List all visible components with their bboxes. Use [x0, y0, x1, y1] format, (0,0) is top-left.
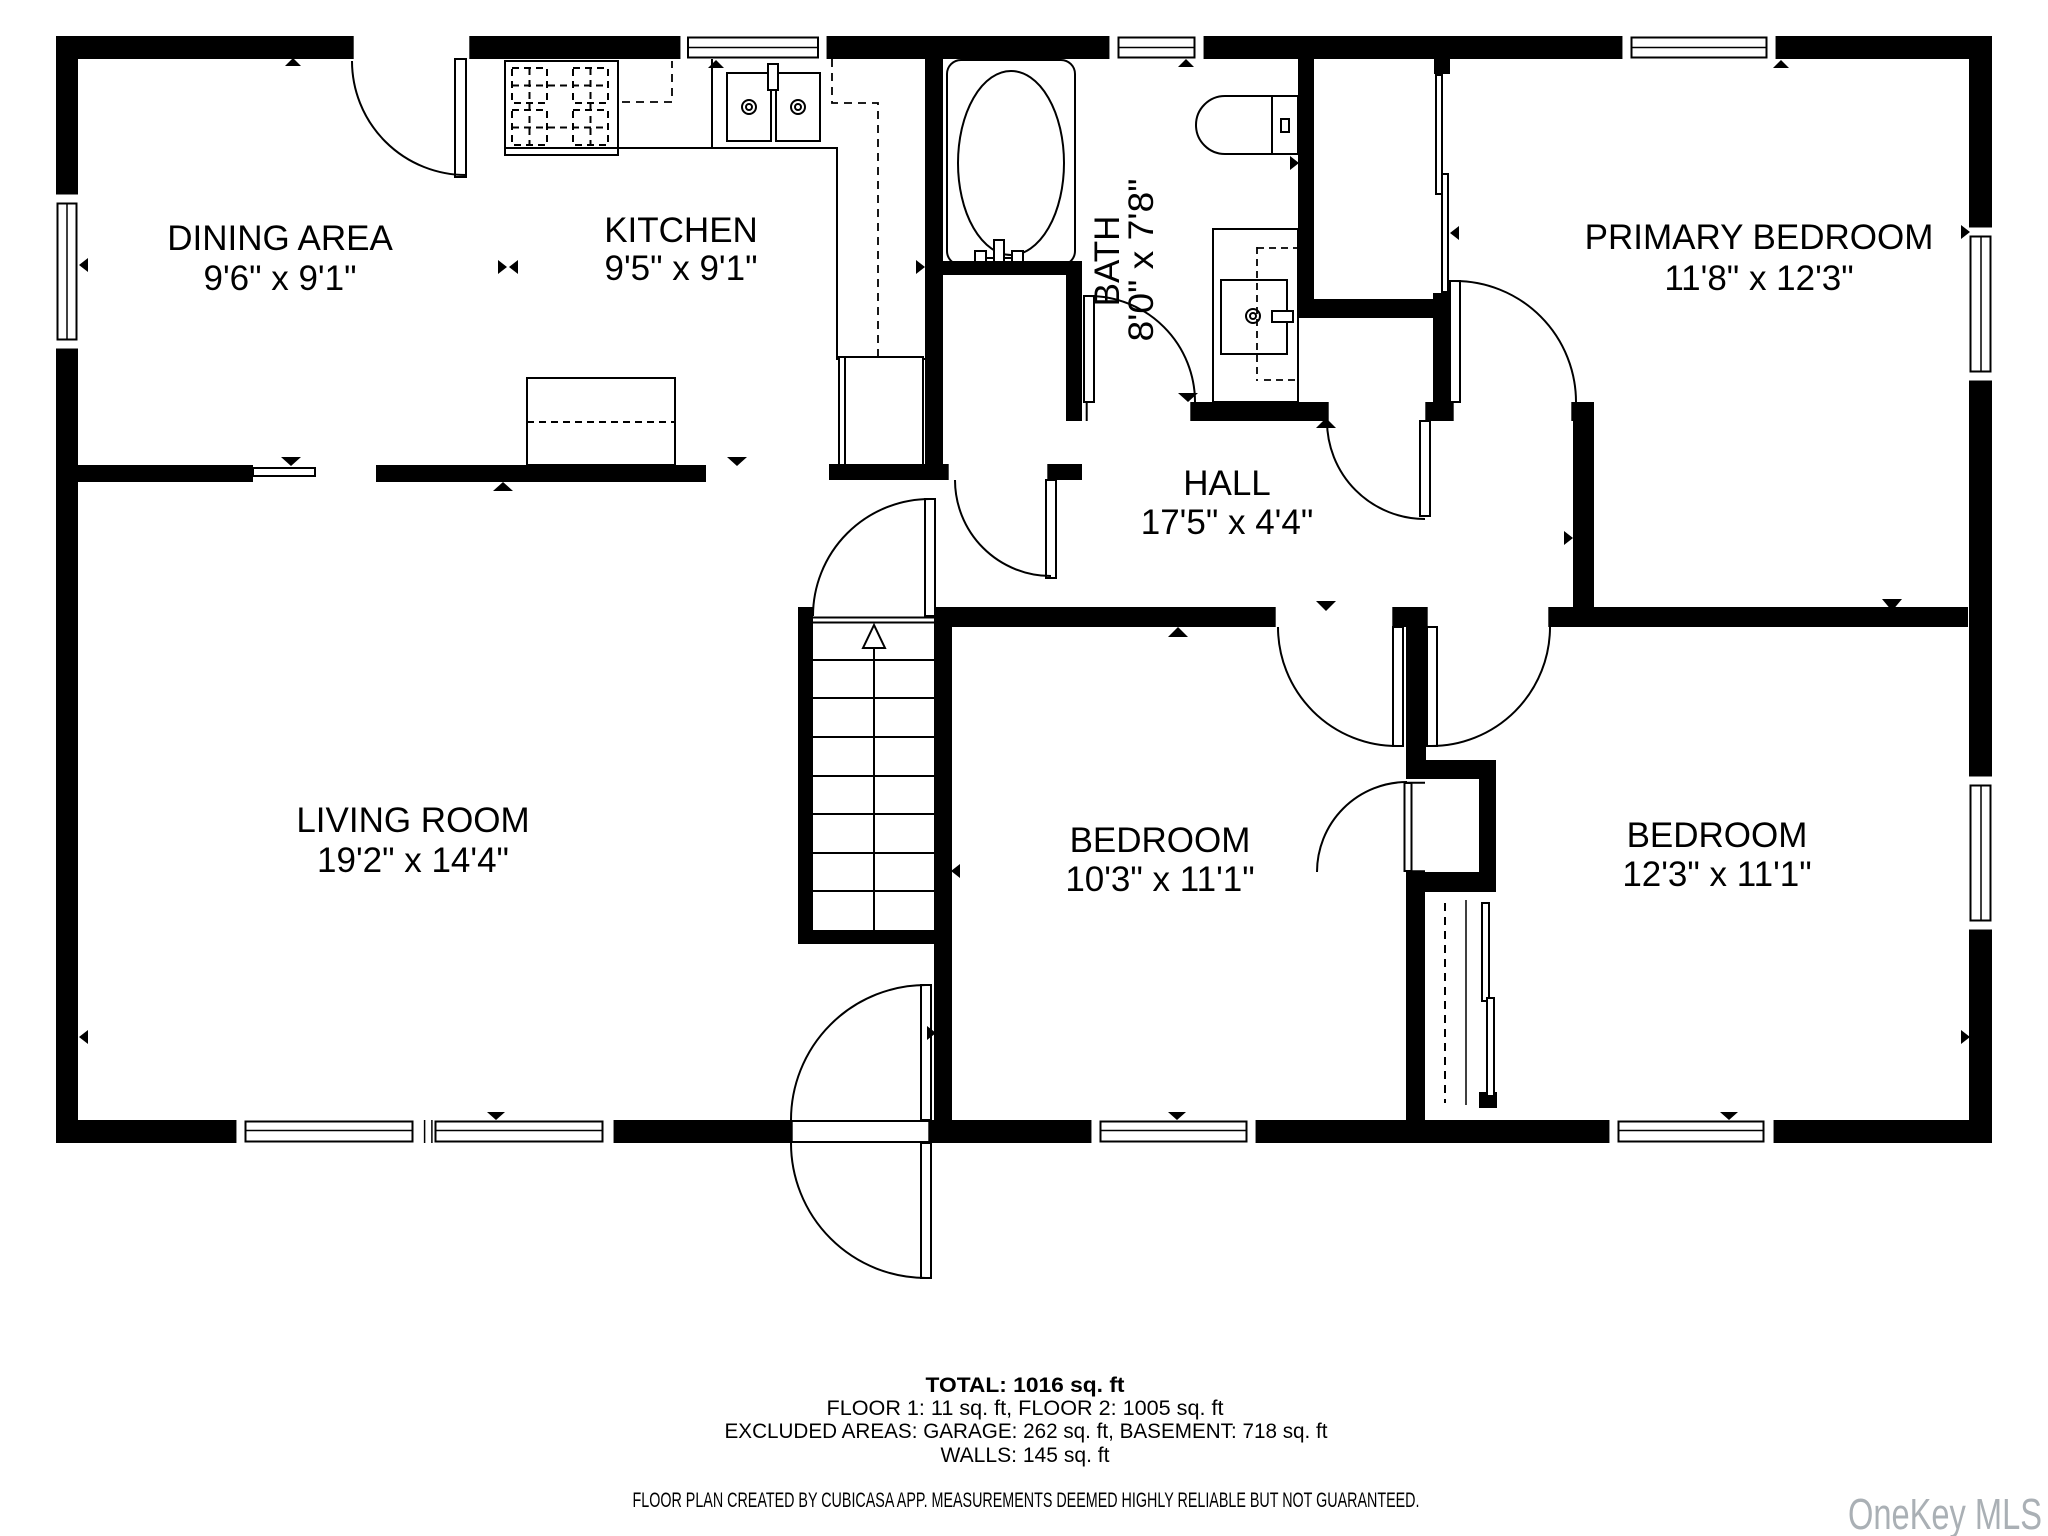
svg-text:LIVING ROOM: LIVING ROOM [296, 801, 529, 840]
svg-text:KITCHEN: KITCHEN [604, 211, 758, 250]
svg-text:BEDROOM: BEDROOM [1070, 821, 1251, 860]
svg-text:DINING AREA: DINING AREA [167, 219, 393, 258]
svg-text:FLOOR PLAN CREATED BY CUBICASA: FLOOR PLAN CREATED BY CUBICASA APP. MEAS… [633, 1489, 1420, 1512]
svg-text:19'2" x 14'4": 19'2" x 14'4" [317, 841, 509, 880]
svg-text:OneKey MLS: OneKey MLS [1848, 1490, 2042, 1536]
svg-text:9'5" x 9'1": 9'5" x 9'1" [604, 249, 757, 288]
svg-text:12'3" x 11'1": 12'3" x 11'1" [1622, 855, 1811, 894]
svg-text:8'0" x 7'8": 8'0" x 7'8" [1122, 179, 1161, 342]
svg-text:FLOOR 1: 11 sq. ft, FLOOR 2: 1: FLOOR 1: 11 sq. ft, FLOOR 2: 1005 sq. ft [827, 1397, 1224, 1420]
svg-text:WALLS: 145 sq. ft: WALLS: 145 sq. ft [941, 1444, 1110, 1467]
svg-text:10'3" x 11'1": 10'3" x 11'1" [1065, 860, 1254, 899]
svg-text:EXCLUDED AREAS: GARAGE: 262 sq: EXCLUDED AREAS: GARAGE: 262 sq. ft, BASE… [725, 1420, 1328, 1443]
svg-text:HALL: HALL [1183, 464, 1271, 503]
svg-text:9'6" x 9'1": 9'6" x 9'1" [203, 259, 356, 298]
svg-text:17'5" x 4'4": 17'5" x 4'4" [1141, 503, 1314, 542]
svg-text:11'8" x 12'3": 11'8" x 12'3" [1664, 259, 1853, 298]
svg-text:TOTAL: 1016 sq. ft: TOTAL: 1016 sq. ft [926, 1374, 1125, 1397]
svg-text:BEDROOM: BEDROOM [1627, 816, 1808, 855]
svg-text:PRIMARY BEDROOM: PRIMARY BEDROOM [1585, 218, 1934, 257]
